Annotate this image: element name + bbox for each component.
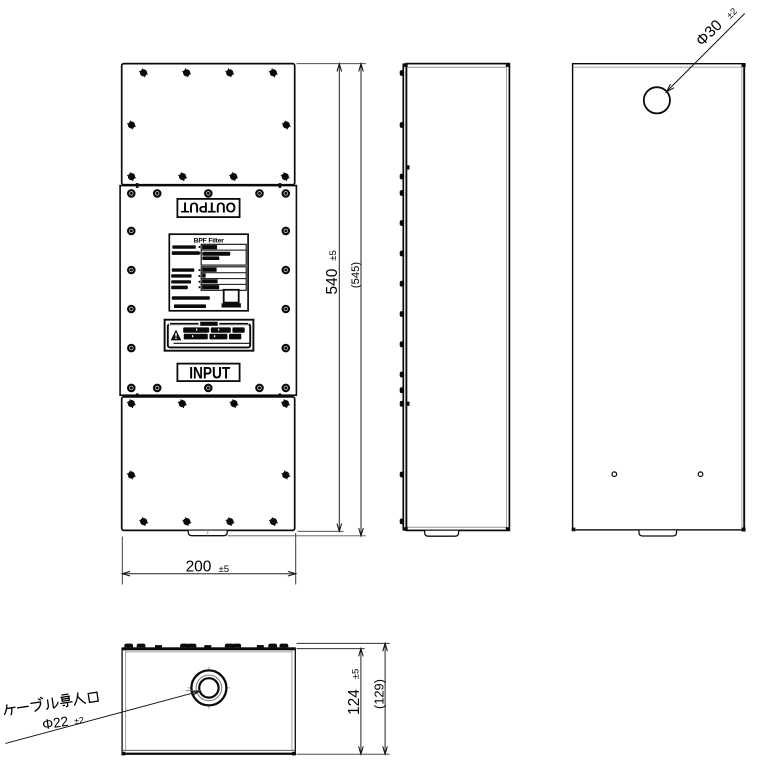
svg-text:200: 200 <box>186 559 212 576</box>
svg-text:±5: ±5 <box>328 250 339 261</box>
svg-text:540: 540 <box>324 268 341 294</box>
svg-text:±5: ±5 <box>350 669 361 680</box>
svg-text:±2: ±2 <box>73 715 84 726</box>
svg-text:(129): (129) <box>371 679 386 709</box>
svg-text:±5: ±5 <box>219 564 230 575</box>
svg-text:INPUT: INPUT <box>189 365 230 383</box>
svg-text:OUTPUT: OUTPUT <box>181 199 236 215</box>
svg-text:124: 124 <box>346 689 363 715</box>
svg-text:BPF Filter: BPF Filter <box>194 237 225 244</box>
svg-text:(545): (545) <box>350 262 362 288</box>
